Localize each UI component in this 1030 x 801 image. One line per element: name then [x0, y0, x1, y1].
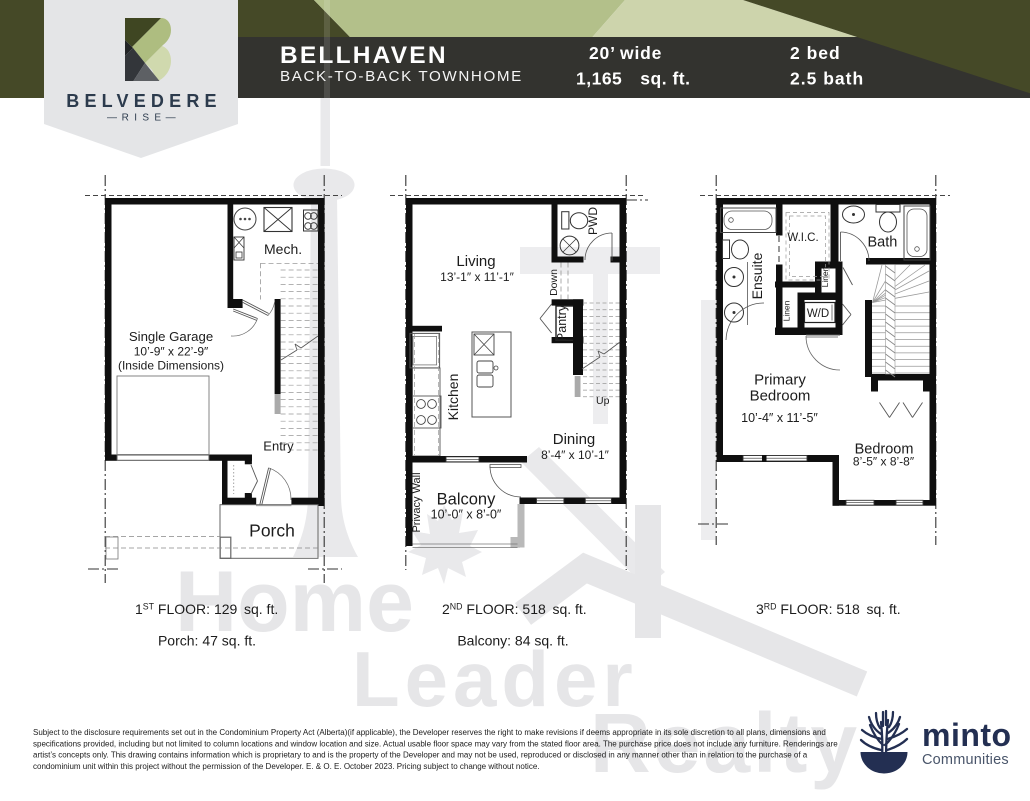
svg-text:3RD FLOOR: 518 sq. ft.: 3RD FLOOR: 518 sq. ft. [756, 601, 901, 617]
svg-text:Balcony: 84 sq. ft.: Balcony: 84 sq. ft. [457, 633, 568, 649]
svg-text:W/D: W/D [807, 308, 829, 320]
svg-text:2 bed: 2 bed [790, 43, 841, 63]
svg-text:Balcony: Balcony [437, 491, 496, 509]
svg-text:20’ wide: 20’ wide [589, 43, 662, 63]
svg-text:13’-1″ x 11’-1″: 13’-1″ x 11’-1″ [440, 270, 514, 284]
svg-text:BELLHAVEN: BELLHAVEN [280, 42, 448, 69]
svg-text:Porch: Porch [249, 521, 295, 541]
svg-text:Subject to the disclosure requ: Subject to the disclosure requirements s… [33, 728, 826, 737]
svg-text:— R I S E —: — R I S E — [107, 113, 177, 124]
svg-text:Primary: Primary [754, 372, 806, 389]
svg-text:Bath: Bath [868, 235, 898, 251]
svg-text:Bedroom: Bedroom [750, 388, 811, 405]
svg-text:Mech.: Mech. [264, 241, 302, 257]
svg-text:2ND FLOOR: 518 sq. ft.: 2ND FLOOR: 518 sq. ft. [442, 601, 587, 617]
svg-text:1ST FLOOR: 129 sq. ft.: 1ST FLOOR: 129 sq. ft. [135, 601, 278, 617]
svg-text:Living: Living [456, 253, 495, 270]
svg-text:Linen: Linen [782, 300, 792, 321]
svg-text:10’-9″ x 22’-9″: 10’-9″ x 22’-9″ [134, 345, 209, 359]
svg-text:PWD: PWD [586, 207, 600, 235]
svg-text:artist’s concepts only. This d: artist’s concepts only. This drawing con… [33, 751, 808, 760]
svg-text:Dining: Dining [553, 431, 596, 448]
svg-text:8’-4″ x 10’-1″: 8’-4″ x 10’-1″ [541, 448, 610, 462]
svg-text:specifications provided, inclu: specifications provided, including but n… [33, 739, 838, 748]
svg-text:minto: minto [922, 717, 1012, 753]
svg-text:(Inside Dimensions): (Inside Dimensions) [118, 359, 224, 373]
svg-text:10’-0″ x 8’-0″: 10’-0″ x 8’-0″ [431, 508, 502, 522]
svg-text:Kitchen: Kitchen [445, 374, 461, 421]
svg-text:Communities: Communities [922, 752, 1009, 768]
svg-text:8’-5″ x 8’-8″: 8’-5″ x 8’-8″ [853, 455, 915, 469]
svg-text:W.I.C.: W.I.C. [787, 232, 818, 244]
svg-text:Entry: Entry [263, 439, 294, 454]
svg-text:BACK-TO-BACK TOWNHOME: BACK-TO-BACK TOWNHOME [280, 68, 523, 85]
svg-text:Pantry: Pantry [555, 304, 569, 341]
svg-text:Porch: 47 sq. ft.: Porch: 47 sq. ft. [158, 633, 256, 649]
svg-text:2.5 bath: 2.5 bath [790, 69, 864, 89]
svg-text:BELVEDERE: BELVEDERE [66, 91, 222, 111]
svg-text:10’-4″ x 11’-5″: 10’-4″ x 11’-5″ [741, 411, 818, 425]
svg-text:condominium unit within this p: condominium unit within this project wit… [33, 762, 540, 771]
svg-text:1,165 sq. ft.: 1,165 sq. ft. [576, 69, 690, 89]
svg-text:Privacy Wall: Privacy Wall [411, 472, 423, 532]
svg-text:Down: Down [548, 269, 560, 296]
svg-text:Up: Up [596, 395, 610, 407]
svg-text:Linen: Linen [820, 266, 830, 287]
svg-text:Ensuite: Ensuite [749, 252, 765, 299]
svg-text:Single Garage: Single Garage [129, 329, 213, 344]
